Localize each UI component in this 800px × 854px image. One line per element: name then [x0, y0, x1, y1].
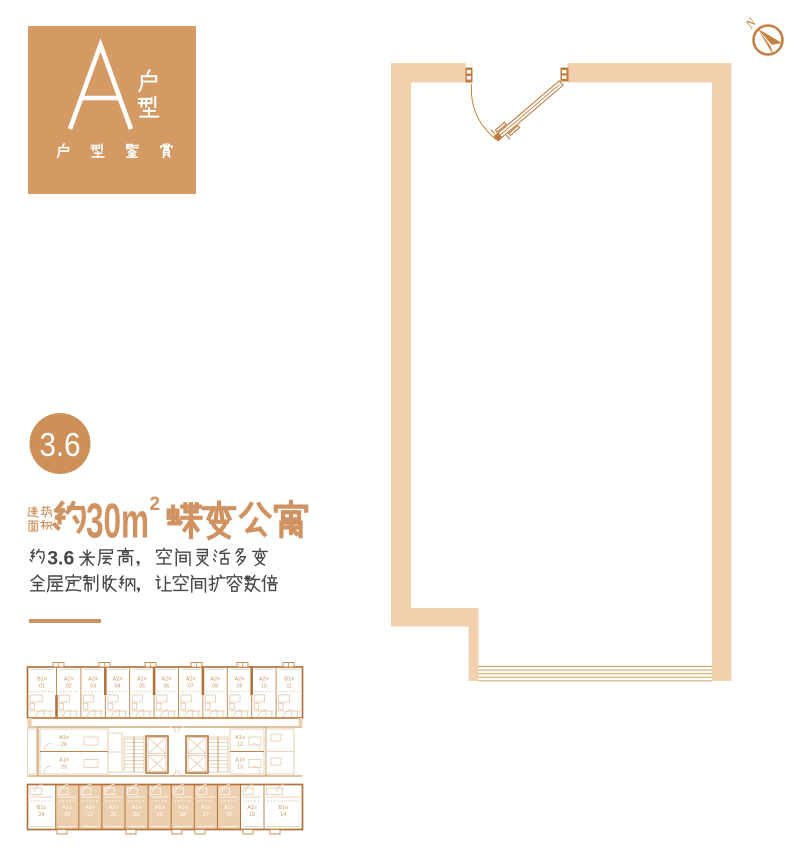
svg-text:18: 18: [180, 812, 186, 818]
svg-text:12: 12: [237, 742, 243, 748]
svg-text:A2≡: A2≡: [235, 677, 245, 683]
svg-text:24: 24: [39, 812, 45, 818]
svg-text:A1≡: A1≡: [132, 805, 142, 811]
svg-text:A1≡: A1≡: [59, 758, 69, 764]
svg-text:A1≡: A1≡: [224, 805, 234, 811]
svg-text:05: 05: [139, 684, 145, 690]
svg-text:A2≡: A2≡: [210, 677, 220, 683]
svg-text:A1≡: A1≡: [62, 805, 72, 811]
svg-text:2: 2: [150, 494, 161, 515]
svg-text:17: 17: [203, 812, 209, 818]
svg-text:13: 13: [237, 765, 243, 771]
svg-text:19: 19: [157, 812, 163, 818]
svg-text:26: 26: [61, 742, 67, 748]
svg-text:10: 10: [261, 684, 267, 690]
svg-text:06: 06: [163, 684, 169, 690]
svg-text:B1≡: B1≡: [37, 805, 47, 811]
svg-text:20: 20: [134, 812, 140, 818]
svg-text:B1≡: B1≡: [284, 677, 294, 683]
svg-text:02: 02: [66, 684, 72, 690]
svg-text:22: 22: [87, 812, 93, 818]
svg-text:30m: 30m: [86, 495, 149, 549]
svg-text:A2≡: A2≡: [186, 677, 196, 683]
svg-text:A1≡: A1≡: [155, 805, 165, 811]
svg-text:A2≡: A2≡: [64, 677, 74, 683]
svg-text:B1≡: B1≡: [37, 677, 47, 683]
svg-text:15: 15: [249, 812, 255, 818]
svg-text:A1≡: A1≡: [201, 805, 211, 811]
svg-text:A1≡: A1≡: [85, 805, 95, 811]
svg-text:A2≡: A2≡: [113, 677, 123, 683]
svg-text:A2≡: A2≡: [259, 677, 269, 683]
svg-text:25: 25: [61, 765, 67, 771]
svg-text:04: 04: [115, 684, 121, 690]
svg-text:A2≡: A2≡: [137, 677, 147, 683]
svg-text:A1≡: A1≡: [59, 735, 69, 741]
svg-text:09: 09: [237, 684, 243, 690]
svg-text:3.6: 3.6: [47, 547, 74, 569]
svg-text:A2≡: A2≡: [161, 677, 171, 683]
svg-text:A1≡: A1≡: [178, 805, 188, 811]
svg-text:3.6: 3.6: [40, 426, 81, 463]
svg-text:A1≡: A1≡: [235, 735, 245, 741]
svg-text:23: 23: [64, 812, 70, 818]
svg-text:03: 03: [90, 684, 96, 690]
svg-text:11: 11: [286, 684, 292, 690]
svg-text:08: 08: [212, 684, 218, 690]
svg-text:A1≡: A1≡: [247, 805, 257, 811]
svg-text:A1≡: A1≡: [235, 758, 245, 764]
svg-text:01: 01: [39, 684, 45, 690]
svg-text:A2≡: A2≡: [88, 677, 98, 683]
svg-text:B1≡: B1≡: [278, 805, 288, 811]
svg-text:07: 07: [188, 684, 194, 690]
svg-text:21: 21: [110, 812, 116, 818]
svg-text:14: 14: [280, 812, 286, 818]
svg-text:16: 16: [226, 812, 232, 818]
svg-text:A1≡: A1≡: [109, 805, 119, 811]
